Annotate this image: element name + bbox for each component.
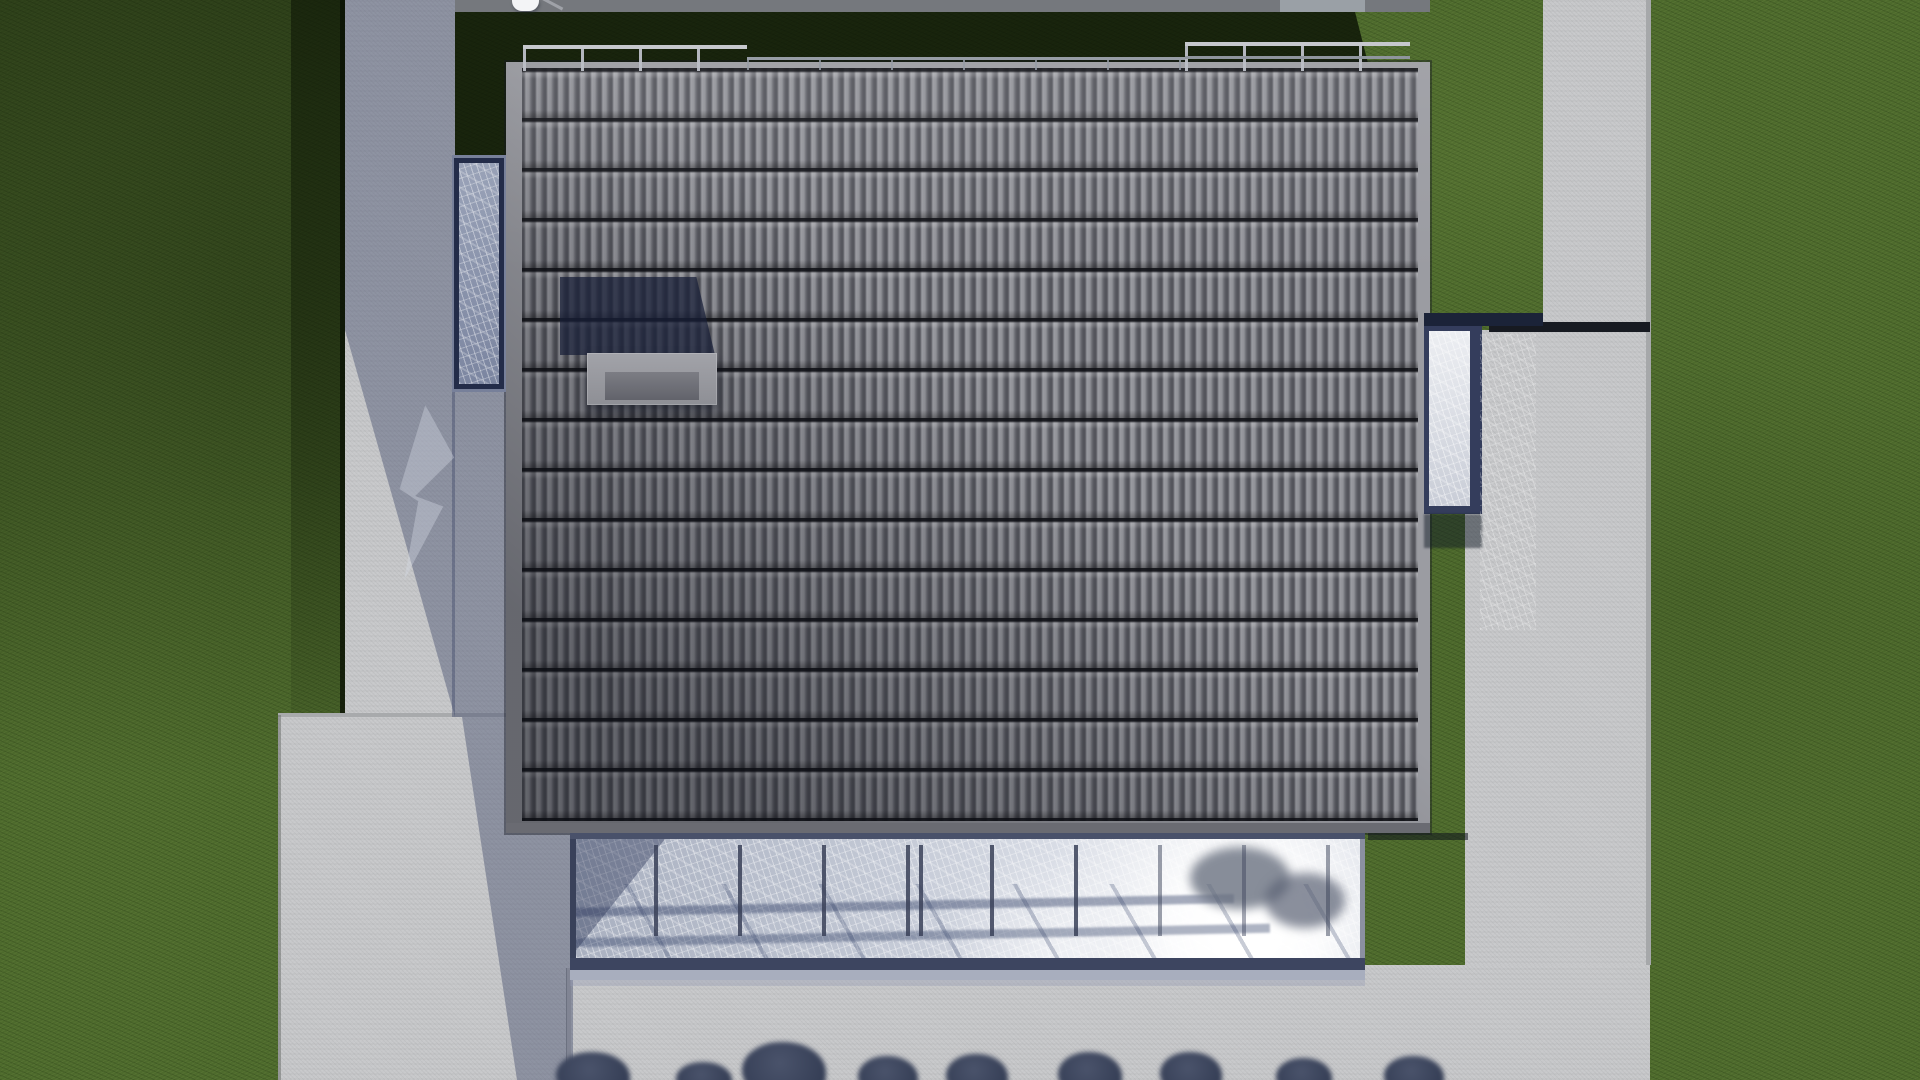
conservatory-mullion [1242, 845, 1246, 936]
conservatory-mullion [1158, 845, 1162, 936]
sunlight-reflection-on-path [1480, 334, 1536, 630]
right-canopy-shadow-band [1424, 313, 1543, 326]
skylight-cast-shadow [560, 277, 715, 355]
right-glass-reflections [1429, 331, 1470, 506]
rooftop-railing-right [1185, 42, 1410, 71]
roof-skylight-box [587, 353, 717, 405]
concrete-path-right-upper [1543, 0, 1650, 332]
conservatory-left-frame [570, 839, 576, 958]
left-glass-reflections [459, 163, 499, 384]
left-glass-canopy [452, 155, 506, 392]
rooftop-railing-right-lower-bar [1185, 56, 1410, 59]
roof-shading-overlay [506, 62, 1430, 833]
left-glass-canopy-frame [454, 158, 504, 389]
conservatory-mullion [1074, 845, 1078, 936]
right-glass-pane [1429, 331, 1470, 506]
roof-skylight-face [605, 372, 699, 400]
reflected-tree-blob-2 [1265, 873, 1345, 928]
rooftop-railing-left [523, 45, 747, 71]
concrete-band-top-lit [1280, 0, 1365, 12]
conservatory-mullion [919, 845, 923, 936]
aerial-render-canvas [0, 0, 1920, 1080]
building-shadow-on-path-extension [452, 385, 510, 717]
path-right-edge-seam [1646, 0, 1651, 965]
rooftop-railing-middle [747, 57, 1185, 70]
glass-conservatory [570, 833, 1365, 980]
conservatory-mullion [1326, 845, 1330, 936]
conservatory-right-frame [1360, 839, 1365, 970]
patio-left-edge-seam [278, 715, 281, 1080]
conservatory-mullion [906, 845, 910, 936]
conservatory-mullion [990, 845, 994, 936]
roof-fascia-bottom [506, 823, 1430, 833]
right-glass-canopy [1424, 326, 1482, 514]
conservatory-mullion [738, 845, 742, 936]
tiled-roof [506, 62, 1430, 833]
patio-blue-tint [570, 970, 1365, 986]
conservatory-glass [570, 839, 1365, 958]
conservatory-mullion [822, 845, 826, 936]
right-canopy-cast-shadow [1424, 514, 1482, 548]
conservatory-top-frame [570, 833, 1365, 839]
conservatory-bottom-frame [570, 958, 1365, 970]
conservatory-mullion [654, 845, 658, 936]
grass-patch-shadow-line [1368, 833, 1468, 840]
